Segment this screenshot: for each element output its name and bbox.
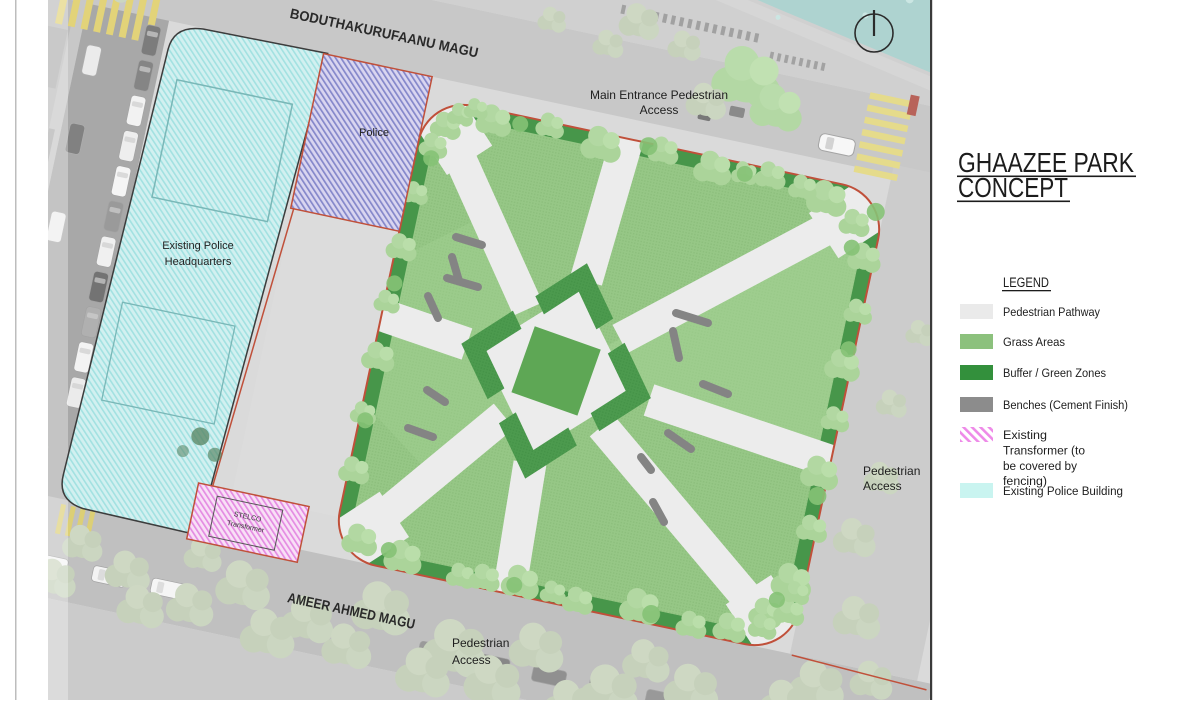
svg-text:Grass Areas: Grass Areas (1003, 335, 1065, 349)
svg-text:Access: Access (863, 479, 902, 493)
svg-text:Existing Police Building: Existing Police Building (1003, 484, 1123, 498)
svg-text:Access: Access (640, 103, 679, 117)
svg-text:Buffer / Green Zones: Buffer / Green Zones (1003, 366, 1106, 380)
svg-text:Main Entrance Pedestrian: Main Entrance Pedestrian (590, 88, 728, 102)
svg-text:LEGEND: LEGEND (1003, 275, 1049, 290)
svg-text:Pedestrian Pathway: Pedestrian Pathway (1003, 305, 1101, 319)
svg-text:Pedestrian: Pedestrian (863, 464, 920, 478)
svg-text:Benches (Cement Finish): Benches (Cement Finish) (1003, 398, 1128, 412)
svg-text:Police: Police (359, 127, 389, 139)
svg-text:CONCEPT: CONCEPT (958, 172, 1068, 203)
svg-text:be covered by: be covered by (1003, 459, 1078, 473)
svg-text:Headquarters: Headquarters (165, 256, 232, 268)
svg-text:Pedestrian: Pedestrian (452, 636, 509, 650)
svg-text:Existing: Existing (1003, 428, 1047, 442)
svg-text:Access: Access (452, 653, 491, 667)
svg-text:Transformer (to: Transformer (to (1003, 443, 1085, 457)
svg-text:Existing Police: Existing Police (162, 240, 234, 252)
